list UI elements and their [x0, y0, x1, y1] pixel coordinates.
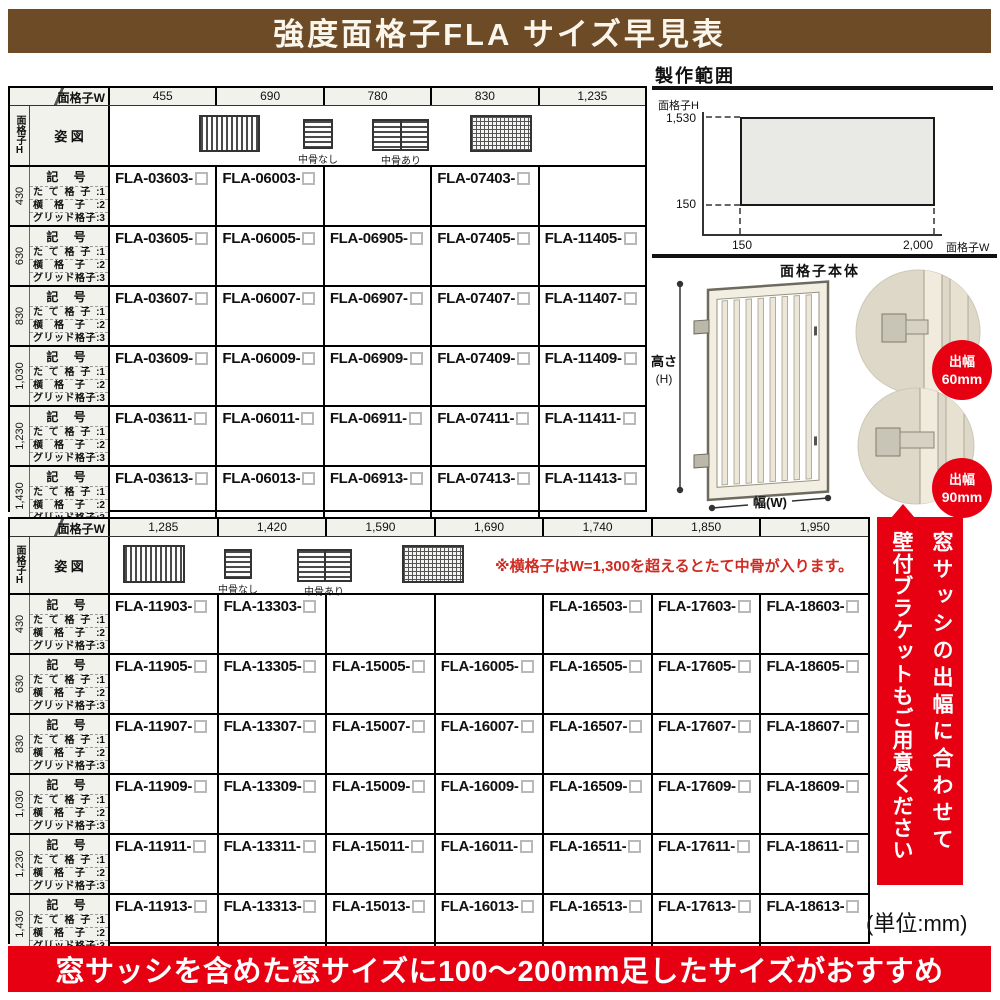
group-cells: FLA-11903-FLA-13303-FLA-16503-FLA-17603-…: [110, 595, 868, 653]
type-row-label: 横格子:2: [30, 440, 108, 453]
code-cell: FLA-06007-: [217, 287, 324, 345]
group-cells: FLA-11909-FLA-13309-FLA-15009-FLA-16009-…: [110, 775, 868, 833]
type-row-label: グリッド格子:3: [30, 701, 108, 713]
code-suffix-box: [194, 780, 207, 793]
code-row-label: 記 号: [30, 655, 108, 675]
code-text: FLA-16011-: [441, 838, 518, 855]
height-dimension-sub: (H): [656, 372, 673, 386]
height-value: 1,230: [14, 422, 26, 450]
size-table-1: 面格子W 4556907808301,235 面格子H 姿 図 中骨なし 中骨あ…: [8, 86, 647, 512]
code-suffix-box: [846, 900, 859, 913]
code-text: FLA-06905-: [330, 230, 408, 247]
code-suffix-box: [410, 472, 423, 485]
code-suffix-box: [737, 840, 750, 853]
height-strip: 630: [10, 655, 30, 713]
code-text: FLA-06909-: [330, 350, 408, 367]
code-text: FLA-11413-: [545, 470, 622, 487]
production-range-title: 製作範囲: [655, 62, 735, 88]
code-text: FLA-06907-: [330, 290, 408, 307]
code-cell: FLA-03607-: [110, 287, 217, 345]
col-axis-label: 面格子W: [58, 520, 105, 537]
code-text: FLA-03607-: [115, 290, 193, 307]
code-suffix-box: [629, 900, 642, 913]
shape-row-label: 姿 図: [30, 106, 110, 165]
code-cell: FLA-16011-: [436, 835, 545, 893]
code-suffix-box: [195, 172, 208, 185]
code-text: FLA-17605-: [658, 658, 736, 675]
lattice-illustration: 面格子本体 高さ (H) 幅(W): [650, 260, 1000, 518]
depth-badge-90-label: 出幅: [949, 472, 975, 487]
code-text: FLA-18607-: [766, 718, 844, 735]
code-suffix-box: [629, 660, 642, 673]
code-suffix-box: [517, 172, 530, 185]
code-text: FLA-07413-: [437, 470, 515, 487]
depth-badge-60-value: 60mm: [942, 371, 982, 387]
code-text: FLA-03611-: [115, 410, 192, 427]
code-suffix-box: [624, 292, 637, 305]
code-cell: [327, 595, 436, 653]
horizontal-lattice-mid-image: [297, 549, 352, 582]
height-value: 630: [14, 247, 26, 265]
code-suffix-box: [301, 412, 314, 425]
code-suffix-box: [410, 232, 423, 245]
code-cell: FLA-15009-: [327, 775, 436, 833]
code-cell: FLA-11913-: [110, 895, 219, 953]
code-cell: [325, 167, 432, 225]
code-cell: FLA-16005-: [436, 655, 545, 713]
code-text: FLA-15013-: [332, 898, 410, 915]
height-strip: 1,230: [10, 407, 30, 465]
depth-badge-90: [932, 458, 992, 518]
code-suffix-box: [193, 840, 206, 853]
code-cell: FLA-03609-: [110, 347, 217, 405]
height-strip: 1,030: [10, 347, 30, 405]
code-suffix-box: [195, 292, 208, 305]
table-group-row: 430記 号たて格子:1横格子:2グリッド格子:3FLA-11903-FLA-1…: [10, 595, 868, 653]
vertical-lattice-image: [199, 115, 260, 152]
page: 強度面格子FLA サイズ早見表 面格子W 4556907808301,235 面…: [0, 0, 1000, 1000]
code-cell: FLA-18603-: [761, 595, 868, 653]
code-suffix-box: [628, 840, 641, 853]
code-text: FLA-16509-: [549, 778, 627, 795]
code-suffix-box: [194, 600, 207, 613]
code-suffix-box: [411, 840, 424, 853]
height-value: 430: [14, 187, 26, 205]
code-text: FLA-15007-: [332, 718, 410, 735]
code-cell: FLA-16013-: [436, 895, 545, 953]
pr-range-area: [740, 117, 935, 206]
code-text: FLA-13311-: [224, 838, 301, 855]
type-row-label: たて格子:1: [30, 915, 108, 928]
pr-x-axis-label: 面格子W: [946, 239, 989, 255]
width-header-cell: 1,740: [544, 519, 653, 536]
code-text: FLA-15005-: [332, 658, 410, 675]
code-text: FLA-16013-: [441, 898, 519, 915]
code-cell: FLA-16513-: [544, 895, 653, 953]
code-row-label: 記 号: [30, 835, 108, 855]
code-row-label: 記 号: [30, 715, 108, 735]
group-label-cell: 記 号たて格子:1横格子:2グリッド格子:3: [30, 895, 110, 953]
group-label-cell: 記 号たて格子:1横格子:2グリッド格子:3: [30, 347, 110, 405]
group-cells: FLA-03603-FLA-06003-FLA-07403-: [110, 167, 645, 225]
table-corner-cell: 面格子W: [10, 519, 110, 536]
depth-badge-60: [932, 340, 992, 400]
code-cell: FLA-06909-: [325, 347, 432, 405]
code-cell: FLA-15013-: [327, 895, 436, 953]
code-suffix-box: [623, 412, 636, 425]
code-text: FLA-07411-: [437, 410, 514, 427]
type-row-label: 横格子:2: [30, 200, 108, 213]
table-group-row: 1,430記 号たて格子:1横格子:2グリッド格子:3FLA-03613-FLA…: [10, 465, 645, 525]
code-text: FLA-16005-: [441, 658, 519, 675]
code-text: FLA-11411-: [545, 410, 621, 427]
group-cells: FLA-11913-FLA-13313-FLA-15013-FLA-16013-…: [110, 895, 868, 953]
code-cell: FLA-18607-: [761, 715, 868, 773]
height-strip: 430: [10, 595, 30, 653]
table1-header-row: 面格子W 4556907808301,235: [10, 88, 645, 106]
type-row-label: グリッド格子:3: [30, 393, 108, 405]
code-suffix-box: [194, 660, 207, 673]
code-suffix-box: [410, 352, 423, 365]
code-text: FLA-11405-: [545, 230, 622, 247]
code-text: FLA-16505-: [549, 658, 627, 675]
code-cell: FLA-06005-: [217, 227, 324, 285]
code-cell: FLA-11911-: [110, 835, 219, 893]
type-row-label: 横格子:2: [30, 320, 108, 333]
code-cell: FLA-13309-: [219, 775, 328, 833]
code-row-label: 記 号: [30, 895, 108, 915]
code-text: FLA-11909-: [115, 778, 192, 795]
code-cell: FLA-11407-: [540, 287, 645, 345]
side-banner-line-1: 窓サッシの出幅に合わせて: [921, 531, 961, 885]
code-cell: FLA-13307-: [219, 715, 328, 773]
height-strip: 630: [10, 227, 30, 285]
col-axis-label: 面格子W: [58, 89, 105, 106]
code-suffix-box: [194, 412, 207, 425]
lattice-body-drawing: [694, 282, 828, 501]
code-cell: FLA-16007-: [436, 715, 545, 773]
code-text: FLA-11903-: [115, 598, 192, 615]
code-cell: FLA-11907-: [110, 715, 219, 773]
type-row-label: たて格子:1: [30, 855, 108, 868]
code-cell: FLA-16503-: [544, 595, 653, 653]
code-suffix-box: [303, 600, 316, 613]
code-text: FLA-03603-: [115, 170, 193, 187]
table-group-row: 830記 号たて格子:1横格子:2グリッド格子:3FLA-03607-FLA-0…: [10, 285, 645, 345]
row-axis-label: 面格子H: [10, 537, 30, 593]
table-corner-cell: 面格子W: [10, 88, 110, 105]
legend-no-mid-rib: 中骨なし: [208, 581, 268, 596]
height-strip: 1,430: [10, 895, 30, 953]
code-cell: FLA-15011-: [327, 835, 436, 893]
code-row-label: 記 号: [30, 775, 108, 795]
type-row-label: たて格子:1: [30, 615, 108, 628]
code-text: FLA-06013-: [222, 470, 300, 487]
code-suffix-box: [409, 412, 422, 425]
width-header-cell: 1,850: [653, 519, 762, 536]
group-cells: FLA-11907-FLA-13307-FLA-15007-FLA-16007-…: [110, 715, 868, 773]
pr-y-max: 1,530: [652, 111, 696, 125]
width-header-cell: 1,235: [540, 88, 645, 105]
height-strip: 430: [10, 167, 30, 225]
code-suffix-box: [412, 900, 425, 913]
code-cell: FLA-15005-: [327, 655, 436, 713]
code-cell: FLA-16511-: [544, 835, 653, 893]
code-row-label: 記 号: [30, 347, 108, 367]
width-header-cell: 830: [432, 88, 539, 105]
code-text: FLA-16007-: [441, 718, 519, 735]
code-cell: FLA-17613-: [653, 895, 762, 953]
code-cell: FLA-06905-: [325, 227, 432, 285]
row-axis-label: 面格子H: [10, 106, 30, 165]
code-suffix-box: [520, 840, 533, 853]
code-suffix-box: [846, 660, 859, 673]
pr-x-min: 150: [722, 238, 762, 252]
code-suffix-box: [303, 720, 316, 733]
height-value: 630: [14, 675, 26, 693]
code-cell: FLA-11905-: [110, 655, 219, 713]
code-text: FLA-17613-: [658, 898, 736, 915]
width-header-cell: 780: [325, 88, 432, 105]
width-header-cell: 1,690: [436, 519, 545, 536]
pr-dashed-line: [739, 208, 741, 234]
type-row-label: たて格子:1: [30, 795, 108, 808]
recommendation-banner: 窓サッシを含めた窓サイズに100〜200mm足したサイズがおすすめ: [8, 946, 991, 992]
code-text: FLA-06911-: [330, 410, 407, 427]
table-group-row: 1,030記 号たて格子:1横格子:2グリッド格子:3FLA-11909-FLA…: [10, 773, 868, 833]
code-cell: FLA-07407-: [432, 287, 539, 345]
code-text: FLA-03609-: [115, 350, 193, 367]
width-header-cell: 1,420: [219, 519, 328, 536]
code-cell: FLA-03603-: [110, 167, 217, 225]
type-row-label: たて格子:1: [30, 735, 108, 748]
table-group-row: 630記 号たて格子:1横格子:2グリッド格子:3FLA-03605-FLA-0…: [10, 225, 645, 285]
code-text: FLA-07407-: [437, 290, 515, 307]
group-cells: FLA-03611-FLA-06011-FLA-06911-FLA-07411-…: [110, 407, 645, 465]
pr-y-min: 150: [662, 197, 696, 211]
code-cell: FLA-18613-: [761, 895, 868, 953]
pr-x-axis-line: [702, 234, 942, 236]
code-cell: FLA-13311-: [219, 835, 328, 893]
table-group-row: 1,430記 号たて格子:1横格子:2グリッド格子:3FLA-11913-FLA…: [10, 893, 868, 953]
type-row-label: グリッド格子:3: [30, 333, 108, 345]
code-row-label: 記 号: [30, 407, 108, 427]
shape-row-label: 姿 図: [30, 537, 110, 593]
height-value: 1,030: [14, 362, 26, 390]
height-value: 430: [14, 615, 26, 633]
code-cell: FLA-18609-: [761, 775, 868, 833]
width-header-cell: 1,950: [761, 519, 868, 536]
code-suffix-box: [846, 780, 859, 793]
type-row-label: 横格子:2: [30, 380, 108, 393]
code-suffix-box: [410, 292, 423, 305]
code-text: FLA-18609-: [766, 778, 844, 795]
code-text: FLA-15009-: [332, 778, 410, 795]
code-suffix-box: [624, 232, 637, 245]
grid-lattice-image: [402, 545, 464, 583]
height-dimension-label: 高さ: [651, 354, 677, 369]
code-cell: FLA-13305-: [219, 655, 328, 713]
group-cells: FLA-11911-FLA-13311-FLA-15011-FLA-16011-…: [110, 835, 868, 893]
code-text: FLA-06009-: [222, 350, 300, 367]
code-suffix-box: [629, 600, 642, 613]
group-cells: FLA-03605-FLA-06005-FLA-06905-FLA-07405-…: [110, 227, 645, 285]
code-suffix-box: [195, 232, 208, 245]
group-label-cell: 記 号たて格子:1横格子:2グリッド格子:3: [30, 835, 110, 893]
code-text: FLA-18603-: [766, 598, 844, 615]
code-text: FLA-13305-: [224, 658, 302, 675]
code-row-label: 記 号: [30, 227, 108, 247]
code-suffix-box: [629, 780, 642, 793]
code-suffix-box: [738, 600, 751, 613]
code-row-label: 記 号: [30, 467, 108, 487]
code-text: FLA-06007-: [222, 290, 300, 307]
height-strip: 1,030: [10, 775, 30, 833]
table2-header-row: 面格子W 1,2851,4201,5901,6901,7401,8501,950: [10, 519, 868, 537]
code-cell: FLA-11411-: [540, 407, 645, 465]
type-row-label: たて格子:1: [30, 187, 108, 200]
height-strip: 1,230: [10, 835, 30, 893]
code-text: FLA-15011-: [332, 838, 409, 855]
code-cell: FLA-18611-: [761, 835, 868, 893]
height-value: 1,430: [14, 910, 26, 938]
side-banner-line-2: 壁付ブラケットもご用意ください: [881, 531, 921, 885]
group-label-cell: 記 号たて格子:1横格子:2グリッド格子:3: [30, 595, 110, 653]
type-row-label: 横格子:2: [30, 260, 108, 273]
title-banner: 強度面格子FLA サイズ早見表: [8, 9, 991, 53]
code-text: FLA-18605-: [766, 658, 844, 675]
height-strip: 830: [10, 287, 30, 345]
vertical-lattice-image: [123, 545, 185, 583]
code-text: FLA-13307-: [224, 718, 302, 735]
code-text: FLA-11905-: [115, 658, 192, 675]
code-text: FLA-18611-: [766, 838, 843, 855]
code-suffix-box: [517, 352, 530, 365]
code-row-label: 記 号: [30, 287, 108, 307]
code-cell: FLA-16009-: [436, 775, 545, 833]
code-suffix-box: [846, 720, 859, 733]
type-row-label: 横格子:2: [30, 808, 108, 821]
code-text: FLA-16511-: [549, 838, 626, 855]
unit-note: (単位:mm): [866, 906, 967, 938]
code-suffix-box: [521, 720, 534, 733]
code-cell: FLA-17611-: [653, 835, 762, 893]
code-text: FLA-03605-: [115, 230, 193, 247]
code-suffix-box: [516, 412, 529, 425]
code-text: FLA-16503-: [549, 598, 627, 615]
code-suffix-box: [412, 660, 425, 673]
height-value: 1,230: [14, 850, 26, 878]
code-suffix-box: [624, 352, 637, 365]
width-header-cell: 455: [110, 88, 217, 105]
code-text: FLA-06003-: [222, 170, 300, 187]
pr-dashed-line: [706, 204, 740, 206]
table1-body: 430記 号たて格子:1横格子:2グリッド格子:3FLA-03603-FLA-0…: [10, 167, 645, 525]
horizontal-lattice-image: [224, 549, 252, 579]
code-text: FLA-06913-: [330, 470, 408, 487]
code-cell: FLA-16509-: [544, 775, 653, 833]
group-label-cell: 記 号たて格子:1横格子:2グリッド格子:3: [30, 775, 110, 833]
code-suffix-box: [624, 472, 637, 485]
code-suffix-box: [521, 660, 534, 673]
group-label-cell: 記 号たて格子:1横格子:2グリッド格子:3: [30, 167, 110, 225]
code-cell: FLA-06003-: [217, 167, 324, 225]
bracket-callout-banner: 窓サッシの出幅に合わせて 壁付ブラケットもご用意ください: [877, 517, 963, 885]
table2-body: 430記 号たて格子:1横格子:2グリッド格子:3FLA-11903-FLA-1…: [10, 595, 868, 953]
type-row-label: たて格子:1: [30, 307, 108, 320]
code-cell: FLA-17609-: [653, 775, 762, 833]
code-text: FLA-13303-: [224, 598, 302, 615]
code-cell: FLA-07409-: [432, 347, 539, 405]
pr-y-axis-line: [702, 112, 704, 236]
recommendation-text: 窓サッシを含めた窓サイズに100〜200mm足したサイズがおすすめ: [55, 948, 943, 990]
table2-shape-area: 中骨なし 中骨あり ※横格子はW=1,300を超えるとたて中骨が入ります。: [110, 537, 868, 593]
code-cell: FLA-17603-: [653, 595, 762, 653]
code-cell: FLA-11409-: [540, 347, 645, 405]
code-suffix-box: [194, 720, 207, 733]
code-cell: FLA-07405-: [432, 227, 539, 285]
code-cell: FLA-13303-: [219, 595, 328, 653]
height-value: 1,430: [14, 482, 26, 510]
depth-badge-90-value: 90mm: [942, 489, 982, 505]
table-group-row: 430記 号たて格子:1横格子:2グリッド格子:3FLA-03603-FLA-0…: [10, 167, 645, 225]
code-cell: FLA-16507-: [544, 715, 653, 773]
code-text: FLA-13309-: [224, 778, 302, 795]
code-suffix-box: [517, 292, 530, 305]
code-cell: FLA-03611-: [110, 407, 217, 465]
pr-dashed-line: [706, 116, 740, 118]
code-text: FLA-06005-: [222, 230, 300, 247]
height-value: 830: [14, 735, 26, 753]
width-header-cell: 1,590: [327, 519, 436, 536]
code-cell: FLA-06009-: [217, 347, 324, 405]
height-value: 1,030: [14, 790, 26, 818]
code-suffix-box: [302, 472, 315, 485]
group-label-cell: 記 号たて格子:1横格子:2グリッド格子:3: [30, 227, 110, 285]
type-row-label: 横格子:2: [30, 928, 108, 941]
code-text: FLA-16507-: [549, 718, 627, 735]
group-cells: FLA-03609-FLA-06009-FLA-06909-FLA-07409-…: [110, 347, 645, 405]
table1-width-headers: 4556907808301,235: [110, 88, 645, 105]
height-strip: 830: [10, 715, 30, 773]
code-text: FLA-17607-: [658, 718, 736, 735]
type-row-label: 横格子:2: [30, 500, 108, 513]
table2-shape-row: 面格子H 姿 図 中骨なし 中骨あり ※横格子はW=1,300を超えるとたて中骨…: [10, 537, 868, 595]
legend-no-mid-rib: 中骨なし: [288, 151, 348, 166]
code-text: FLA-11913-: [115, 898, 192, 915]
group-label-cell: 記 号たて格子:1横格子:2グリッド格子:3: [30, 655, 110, 713]
table-group-row: 1,230記 号たて格子:1横格子:2グリッド格子:3FLA-03611-FLA…: [10, 405, 645, 465]
code-cell: FLA-06911-: [325, 407, 432, 465]
code-text: FLA-16009-: [441, 778, 519, 795]
code-suffix-box: [302, 172, 315, 185]
legend-with-mid-rib: 中骨あり: [294, 583, 354, 598]
code-suffix-box: [738, 780, 751, 793]
width-dimension-label: 幅(W): [753, 495, 787, 510]
code-text: FLA-16513-: [549, 898, 627, 915]
wall-bracket: [694, 454, 709, 468]
table2-width-headers: 1,2851,4201,5901,6901,7401,8501,950: [110, 519, 868, 536]
code-suffix-box: [629, 720, 642, 733]
table1-shape-row: 面格子H 姿 図 中骨なし 中骨あり: [10, 106, 645, 167]
code-suffix-box: [738, 660, 751, 673]
code-suffix-box: [303, 840, 316, 853]
grid-lattice-image: [470, 115, 532, 152]
table1-shape-area: 中骨なし 中骨あり: [110, 106, 645, 165]
group-label-cell: 記 号たて格子:1横格子:2グリッド格子:3: [30, 407, 110, 465]
type-row-label: 横格子:2: [30, 688, 108, 701]
width-header-cell: 1,285: [110, 519, 219, 536]
